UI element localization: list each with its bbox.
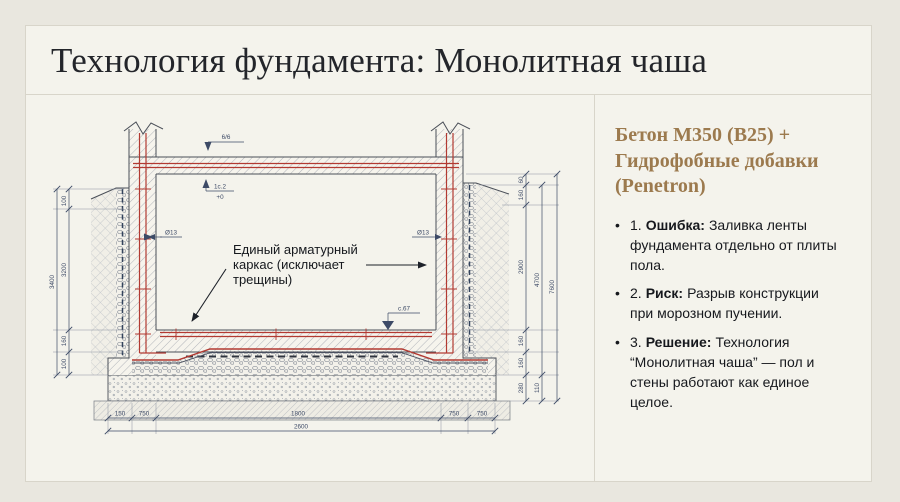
slide-body: 100 3200 160 100 3400 [26, 95, 871, 481]
dim-label: 750 [139, 411, 150, 418]
section-mark: 6/6 [208, 134, 244, 150]
annotation-line-1: Единый арматурный [233, 242, 358, 257]
dim-label: 2900 [518, 260, 525, 275]
dim-label: 160 [518, 335, 525, 346]
annotation-line-2: каркас (исключает [233, 257, 345, 272]
bullet-term: Решение: [646, 334, 712, 350]
dimensions-left: 100 3200 160 100 3400 [49, 186, 72, 378]
dim-label: 100 [61, 195, 68, 206]
side-panel: Бетон М350 (В25) + Гидрофобные добавки (… [594, 95, 871, 481]
dim-label: 160 [61, 335, 68, 346]
bullet-number: 1. [630, 217, 642, 233]
slide-card: Технология фундамента: Монолитная чаша [25, 25, 872, 482]
dim-label: 3400 [49, 275, 56, 290]
drawing-zone: 100 3200 160 100 3400 [26, 95, 594, 481]
rebar-annotation: Единый арматурный каркас (исключает трещ… [192, 242, 426, 321]
slide: Технология фундамента: Монолитная чаша [0, 0, 900, 502]
bullet-item-1: 1.Ошибка:Заливка ленты фундамента отдель… [615, 216, 845, 276]
dimensions-right: 60 160 2900 160 160 280 4700 110 7600 [518, 171, 560, 404]
slope-mark-label: 1с.2 [214, 184, 226, 191]
dim-label: 7600 [549, 280, 556, 295]
dim-label: 3200 [61, 263, 68, 278]
annotation-line-3: трещины) [233, 272, 292, 287]
dim-label: 2600 [294, 424, 309, 431]
dim-label: 280 [518, 382, 525, 393]
dim-label: 4700 [534, 273, 541, 288]
dim-label: 750 [477, 411, 488, 418]
material-heading: Бетон М350 (В25) + Гидрофобные добавки (… [615, 123, 845, 200]
dim-label: 1800 [291, 411, 306, 418]
leader-arrow-left [192, 269, 226, 321]
dim-label: 60 [518, 176, 525, 184]
bullet-item-3: 3.Решение:Технология “Монолитная чаша” —… [615, 333, 845, 413]
rebar-left-label: Ø13 [165, 230, 177, 237]
page-title: Технология фундамента: Монолитная чаша [51, 40, 846, 82]
bullet-number: 3. [630, 334, 642, 350]
slope-mark: 1с.2 +0 [206, 180, 234, 201]
section-mark-label: 6/6 [222, 134, 231, 141]
rebar-right-label: Ø13 [417, 230, 429, 237]
dim-label: 750 [449, 411, 460, 418]
bullet-term: Риск: [646, 285, 683, 301]
foundation-drawing: 100 3200 160 100 3400 [36, 109, 592, 459]
level-mark-label: с.67 [398, 306, 410, 313]
zero-level-label: +0 [216, 194, 224, 201]
level-mark: с.67 [382, 306, 420, 331]
dim-label: 160 [518, 357, 525, 368]
bullet-list: 1.Ошибка:Заливка ленты фундамента отдель… [615, 216, 845, 413]
dim-label: 160 [518, 189, 525, 200]
bullet-item-2: 2.Риск:Разрыв конструкции при морозном п… [615, 284, 845, 324]
bullet-number: 2. [630, 285, 642, 301]
dim-label: 100 [61, 358, 68, 369]
title-block: Технология фундамента: Монолитная чаша [26, 26, 871, 95]
dim-label: 110 [534, 382, 541, 393]
backfill-left [91, 188, 129, 375]
bullet-term: Ошибка: [646, 217, 705, 233]
dim-label: 150 [115, 411, 126, 418]
